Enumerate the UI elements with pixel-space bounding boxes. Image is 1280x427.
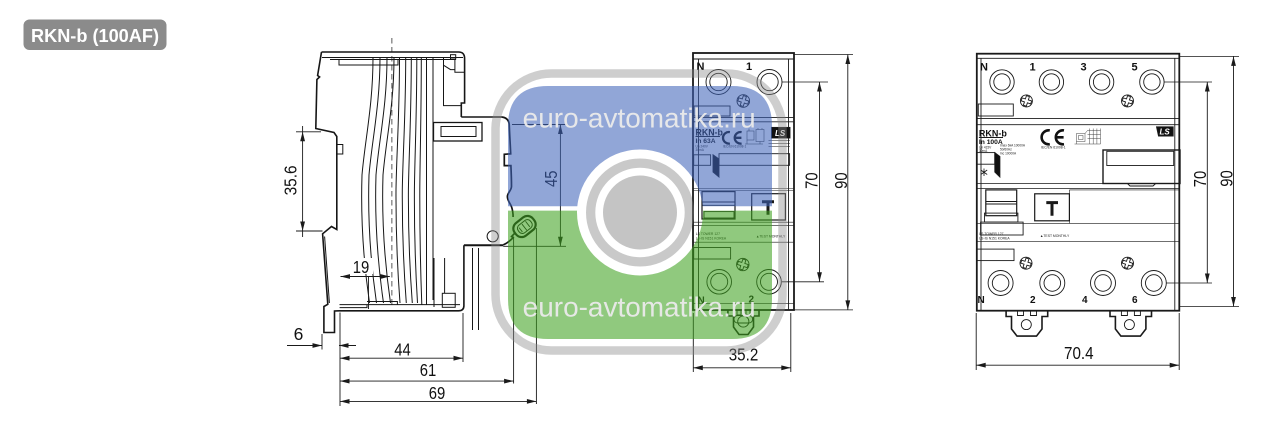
svg-text:1: 1 — [746, 61, 752, 73]
svg-text:IEC/EN 61008-1: IEC/EN 61008-1 — [1041, 145, 1066, 149]
svg-text:euro-avtomatika.ru: euro-avtomatika.ru — [523, 292, 756, 323]
svg-text:30mA: 30mA — [979, 149, 988, 153]
svg-text:6: 6 — [294, 324, 304, 344]
svg-text:19: 19 — [353, 257, 370, 277]
svg-text:LS: LS — [1160, 128, 1171, 137]
svg-text:61: 61 — [420, 360, 437, 380]
svg-text:6: 6 — [1132, 295, 1138, 306]
svg-text:N: N — [980, 62, 988, 74]
svg-text:1: 1 — [1030, 62, 1036, 74]
svg-text:69: 69 — [429, 383, 446, 403]
svg-text:4: 4 — [1082, 295, 1088, 306]
svg-text:LS-IS N151 KOREA: LS-IS N151 KOREA — [979, 237, 1010, 241]
svg-text:N: N — [978, 295, 985, 306]
svg-text:Inc 10000A: Inc 10000A — [1000, 152, 1017, 156]
svg-text:70.4: 70.4 — [1064, 343, 1094, 363]
svg-text:RKN-b: RKN-b — [979, 129, 1007, 139]
svg-text:90: 90 — [831, 172, 851, 189]
svg-text:5: 5 — [1132, 62, 1138, 74]
svg-text:LS TOWER 127: LS TOWER 127 — [979, 232, 1003, 236]
svg-text:2: 2 — [1030, 295, 1036, 306]
svg-text:▲TEST MONTHLY: ▲TEST MONTHLY — [1040, 234, 1070, 238]
svg-text:44: 44 — [394, 340, 411, 360]
svg-text:euro-avtomatika.ru: euro-avtomatika.ru — [523, 103, 756, 134]
svg-text:70: 70 — [1190, 171, 1210, 188]
svg-text:70: 70 — [802, 172, 822, 189]
svg-text:RKN-b (100AF): RKN-b (100AF) — [31, 25, 159, 46]
svg-text:90: 90 — [1217, 170, 1237, 187]
svg-text:35.6: 35.6 — [281, 165, 301, 195]
svg-text:3: 3 — [1081, 62, 1087, 74]
